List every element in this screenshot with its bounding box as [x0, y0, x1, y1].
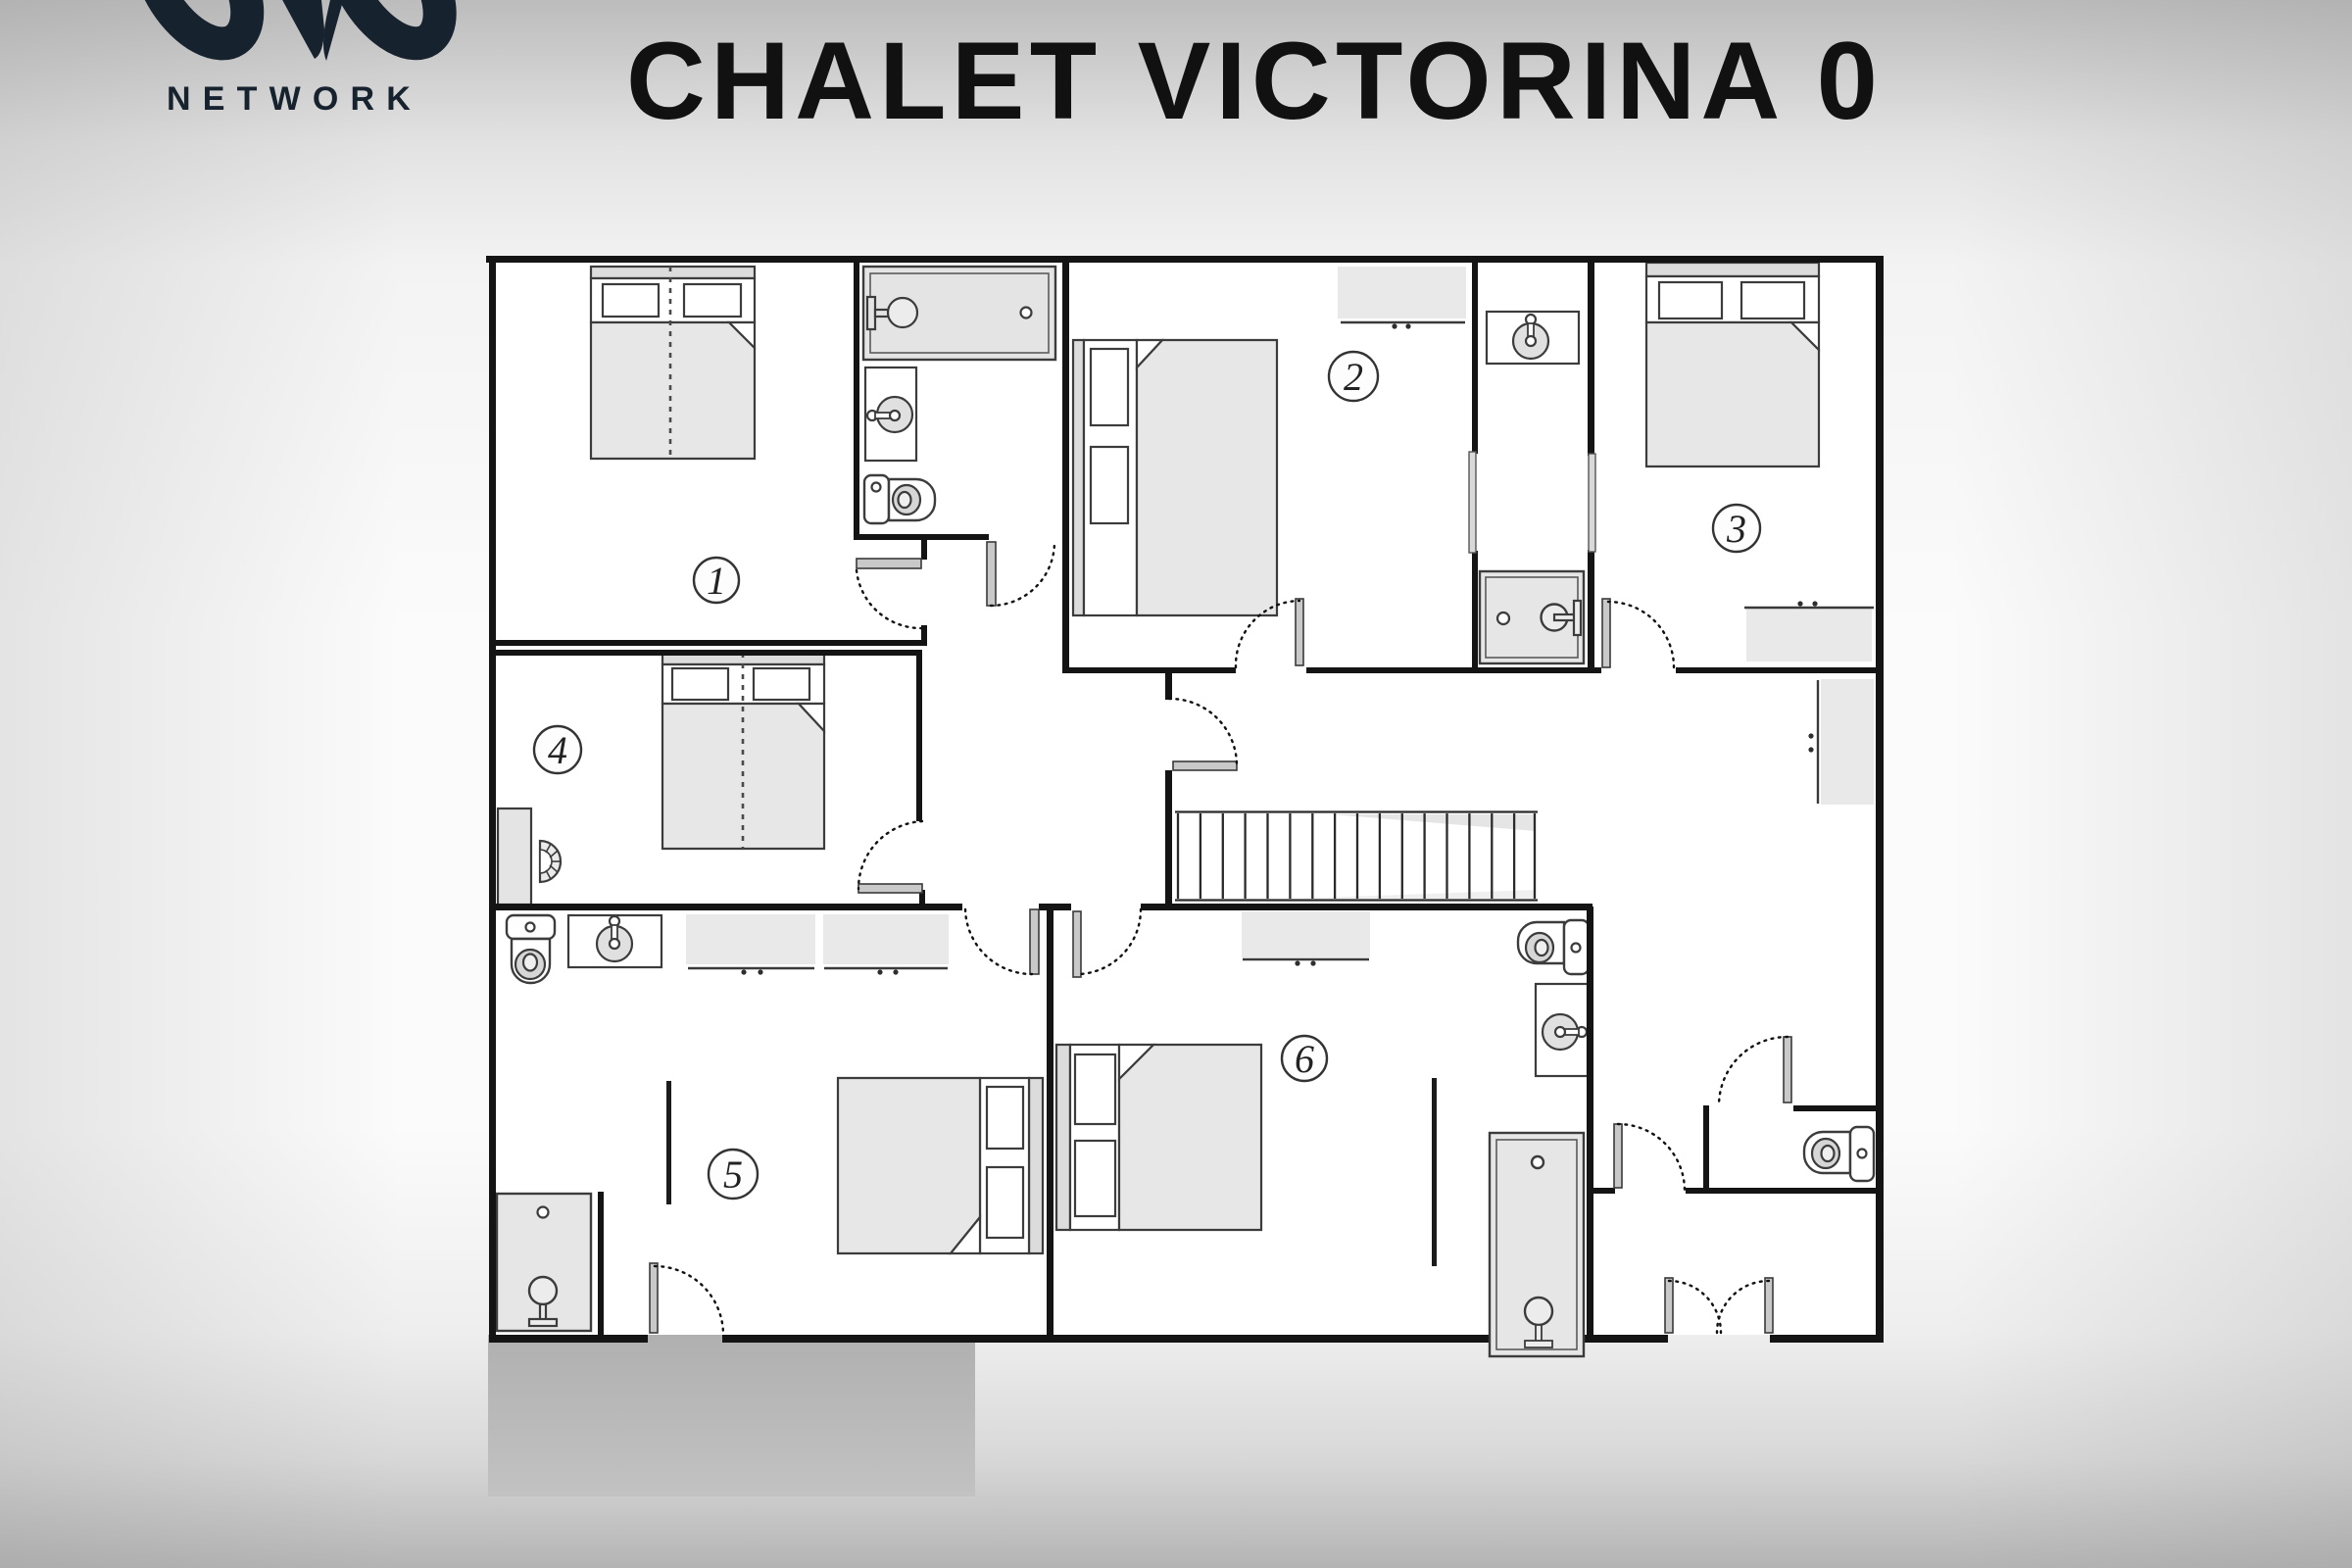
svg-text:5: 5: [723, 1152, 743, 1197]
svg-text:6: 6: [1295, 1037, 1314, 1081]
svg-text:1: 1: [707, 559, 726, 603]
svg-text:CHALET VICTORINA 0: CHALET VICTORINA 0: [626, 20, 1883, 142]
svg-text:NETWORK: NETWORK: [167, 80, 422, 118]
svg-text:2: 2: [1344, 355, 1363, 399]
svg-text:4: 4: [548, 728, 567, 772]
svg-text:3: 3: [1726, 507, 1746, 551]
